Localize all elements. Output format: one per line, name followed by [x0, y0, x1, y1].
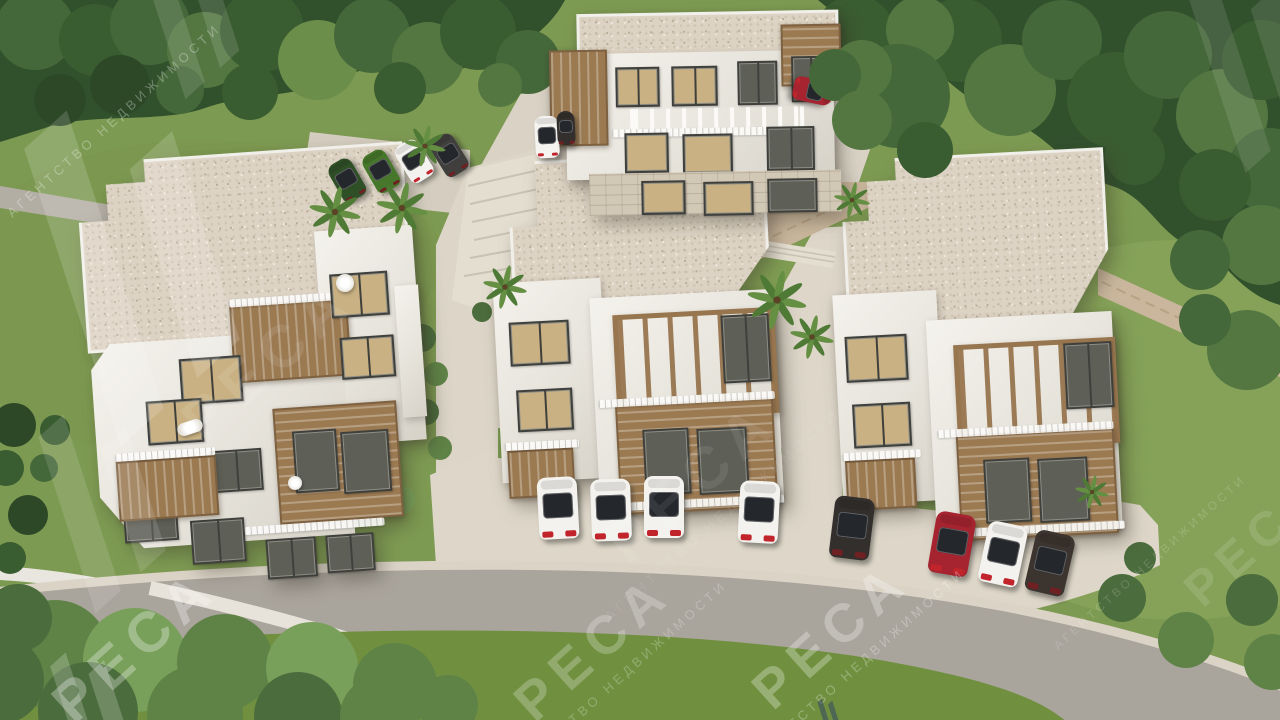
car-windshield: [935, 527, 969, 557]
taillight-right: [569, 140, 574, 143]
car-taillights: [595, 532, 630, 539]
car-taillights: [542, 530, 577, 537]
taillight-left: [796, 77, 801, 84]
taillight-left: [542, 531, 553, 537]
car-dark-brown: [1024, 528, 1077, 597]
taillight-left: [647, 530, 658, 536]
car-hood: [648, 479, 681, 488]
taillight-left: [538, 153, 545, 157]
taillight-left: [595, 533, 606, 539]
taillight-right: [461, 162, 469, 169]
car-black: [828, 495, 875, 561]
taillight-left: [379, 186, 387, 193]
car-white: [737, 480, 780, 544]
taillight-right: [819, 83, 824, 90]
car-windshield: [595, 495, 626, 521]
taillight-right: [843, 87, 847, 93]
car-white: [841, 74, 879, 103]
taillight-left: [345, 195, 353, 202]
car-windshield: [537, 126, 556, 144]
taillight-right: [670, 530, 681, 536]
car-taillights: [538, 152, 559, 157]
car-windshield: [559, 119, 573, 133]
taillight-right: [793, 91, 798, 98]
car-taillights: [980, 573, 1015, 586]
taillight-right: [358, 188, 366, 195]
car-windshield: [986, 536, 1021, 567]
car-hood: [594, 482, 627, 492]
car-hood: [558, 112, 573, 118]
taillight-right: [552, 152, 559, 156]
car-taillights: [413, 168, 434, 183]
taillight-left: [1027, 581, 1039, 589]
car-hood: [744, 483, 777, 494]
car-taillights: [379, 179, 400, 193]
taillight-left: [930, 564, 942, 571]
car-white: [536, 476, 579, 540]
car-white: [977, 520, 1029, 589]
car-hood: [536, 118, 556, 125]
parasol: [288, 476, 302, 490]
taillight-left: [559, 141, 564, 144]
taillight-right: [618, 532, 629, 538]
car-taillights: [559, 140, 575, 144]
car-taillights: [740, 534, 775, 541]
taillight-left: [980, 573, 992, 581]
taillight-left: [831, 549, 843, 556]
car-taillights: [930, 564, 965, 575]
terrace-table: [176, 417, 205, 437]
car-windshield: [542, 492, 574, 518]
car-dark-gray: [427, 130, 471, 179]
car-taillights: [793, 77, 801, 98]
aerial-render-scene: РЕСА АГЕНТСТВО НЕДВИЖИМОСТИ РЕСА АГЕНТСТ…: [0, 0, 1280, 720]
car-taillights: [819, 71, 827, 90]
taillight-right: [565, 530, 576, 536]
car-white: [590, 478, 632, 541]
taillight-left: [448, 170, 456, 177]
car-taillights: [345, 188, 366, 202]
taillight-right: [1050, 587, 1062, 595]
taillight-right: [426, 168, 434, 175]
parasol: [336, 274, 354, 292]
car-red: [927, 510, 977, 578]
car-windshield: [853, 79, 870, 97]
car-taillights: [831, 549, 866, 559]
car-taillights: [448, 162, 469, 177]
taillight-right: [1003, 578, 1015, 586]
taillight-right: [392, 179, 400, 186]
taillight-right: [855, 552, 867, 559]
parked-cars-layer: [0, 0, 1280, 720]
car-windshield: [743, 496, 775, 522]
taillight-left: [822, 71, 827, 78]
car-windshield: [1033, 545, 1068, 576]
taillight-right: [953, 568, 965, 575]
taillight-left: [413, 176, 421, 183]
car-taillights: [647, 530, 681, 536]
car-hood: [838, 498, 872, 511]
car-hood: [540, 479, 573, 490]
taillight-left: [846, 75, 850, 81]
taillight-left: [740, 534, 751, 540]
car-white: [644, 476, 684, 538]
car-windshield: [649, 492, 679, 517]
car-windshield: [836, 511, 869, 539]
taillight-right: [764, 535, 775, 541]
car-taillights: [1027, 581, 1062, 594]
car-hood: [939, 514, 973, 529]
car-black: [556, 111, 576, 146]
